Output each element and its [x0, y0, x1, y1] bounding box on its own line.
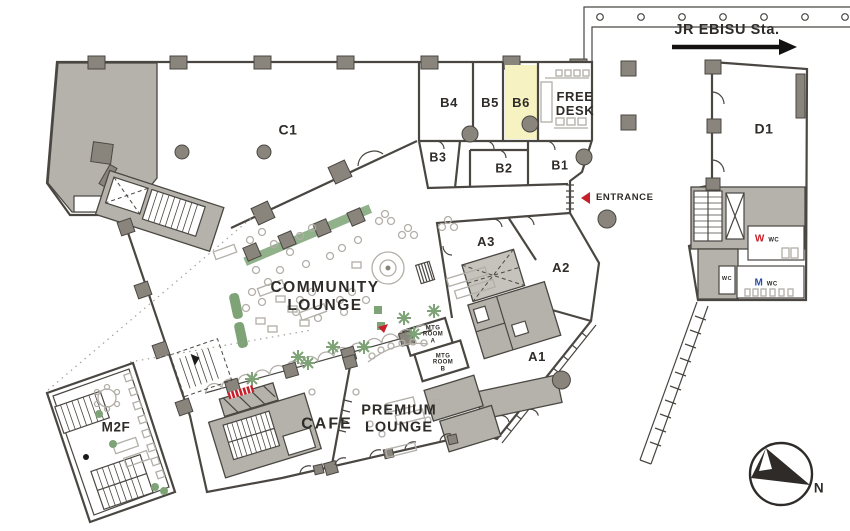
area-label-mtg-room-b: MTG ROOM B [433, 353, 453, 372]
wc-men-letter: M [754, 278, 763, 289]
room-label-b5: B5 [481, 96, 499, 110]
wc-women-letter: W [755, 234, 765, 245]
area-label-community-lounge: COMMUNITY LOUNGE [270, 279, 379, 315]
wc-women-wc: WC [768, 238, 779, 244]
room-label-a3: A3 [477, 235, 495, 249]
mtg-a-line2: ROOM [423, 332, 443, 338]
community-lounge-line2: LOUNGE [270, 297, 379, 315]
room-label-b1: B1 [551, 159, 568, 173]
floor-plan-drawing [0, 0, 850, 531]
room-label-b3: B3 [429, 151, 446, 165]
area-label-cafe: CAFE [301, 415, 353, 432]
entrance-label: ENTRANCE [596, 193, 654, 203]
wc-women-label: W WC [755, 235, 779, 246]
mtg-b-line2: ROOM [433, 360, 453, 366]
wc-men-label: M WC [754, 279, 777, 290]
mtg-b-line3: B [433, 366, 453, 372]
room-label-m2f: M2F [102, 421, 131, 436]
d1-building [689, 60, 807, 300]
premium-lounge-line2: LOUNGE [361, 419, 436, 436]
compass-north-label: N [814, 482, 824, 497]
station-label: JR EBISU Sta. [674, 23, 779, 39]
room-label-a2: A2 [552, 261, 570, 275]
floor-plan: JR EBISU Sta. C1 B4 B5 B6 FREE DESK B3 B… [0, 0, 850, 531]
se-corridor [640, 302, 708, 464]
room-label-b2: B2 [495, 162, 512, 176]
room-label-d1: D1 [754, 121, 773, 136]
free-desk-line1: FREE [556, 90, 595, 104]
room-label-b6: B6 [512, 96, 530, 110]
room-label-a1: A1 [528, 350, 546, 364]
area-label-free-desk: FREE DESK [556, 90, 595, 118]
compass [750, 443, 812, 505]
area-label-premium-lounge: PREMIUM LOUNGE [361, 402, 436, 435]
wc-men-wc: WC [767, 282, 778, 288]
station-direction-arrow [672, 39, 797, 55]
room-label-b4: B4 [440, 96, 458, 110]
premium-lounge-line1: PREMIUM [361, 402, 436, 419]
area-label-mtg-room-a: MTG ROOM A [423, 325, 443, 344]
free-desk-line2: DESK [556, 104, 595, 118]
community-lounge-line1: COMMUNITY [270, 279, 379, 297]
mtg-a-line3: A [423, 338, 443, 344]
entrance-arrow-icon [581, 192, 590, 204]
m2f-block [47, 363, 175, 522]
room-label-c1: C1 [278, 122, 297, 137]
wc-unisex-label: WC [722, 277, 732, 283]
